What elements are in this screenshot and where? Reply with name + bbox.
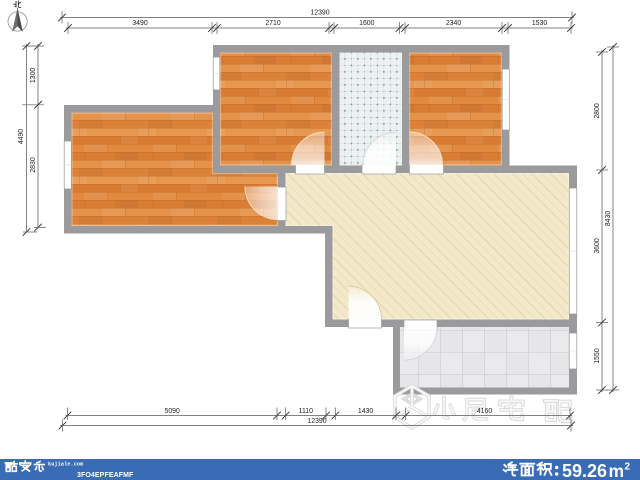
svg-text:8430: 8430 bbox=[605, 211, 612, 226]
svg-text:3490: 3490 bbox=[132, 20, 147, 27]
svg-text:1550: 1550 bbox=[594, 348, 601, 363]
svg-text:2830: 2830 bbox=[30, 157, 37, 172]
svg-text:12390: 12390 bbox=[307, 418, 326, 425]
svg-text:5090: 5090 bbox=[165, 408, 180, 415]
svg-text:2800: 2800 bbox=[594, 103, 601, 118]
svg-text:1430: 1430 bbox=[358, 408, 373, 415]
svg-text:2: 2 bbox=[625, 462, 631, 473]
svg-text:m: m bbox=[609, 461, 625, 480]
svg-text:4490: 4490 bbox=[18, 129, 25, 144]
svg-text:59.26: 59.26 bbox=[562, 461, 607, 480]
svg-text:1110: 1110 bbox=[299, 408, 313, 415]
svg-text:1600: 1600 bbox=[359, 20, 374, 27]
svg-text:3FO4EPFEAFMF: 3FO4EPFEAFMF bbox=[77, 472, 134, 479]
svg-text:1300: 1300 bbox=[30, 68, 37, 83]
svg-text:1530: 1530 bbox=[532, 20, 547, 27]
svg-text:12390: 12390 bbox=[310, 10, 329, 17]
svg-text:2710: 2710 bbox=[265, 20, 280, 27]
svg-text:3600: 3600 bbox=[594, 238, 601, 253]
svg-text:kujiale.com: kujiale.com bbox=[48, 461, 83, 467]
svg-text:4160: 4160 bbox=[477, 408, 492, 415]
svg-text:2340: 2340 bbox=[446, 20, 461, 27]
